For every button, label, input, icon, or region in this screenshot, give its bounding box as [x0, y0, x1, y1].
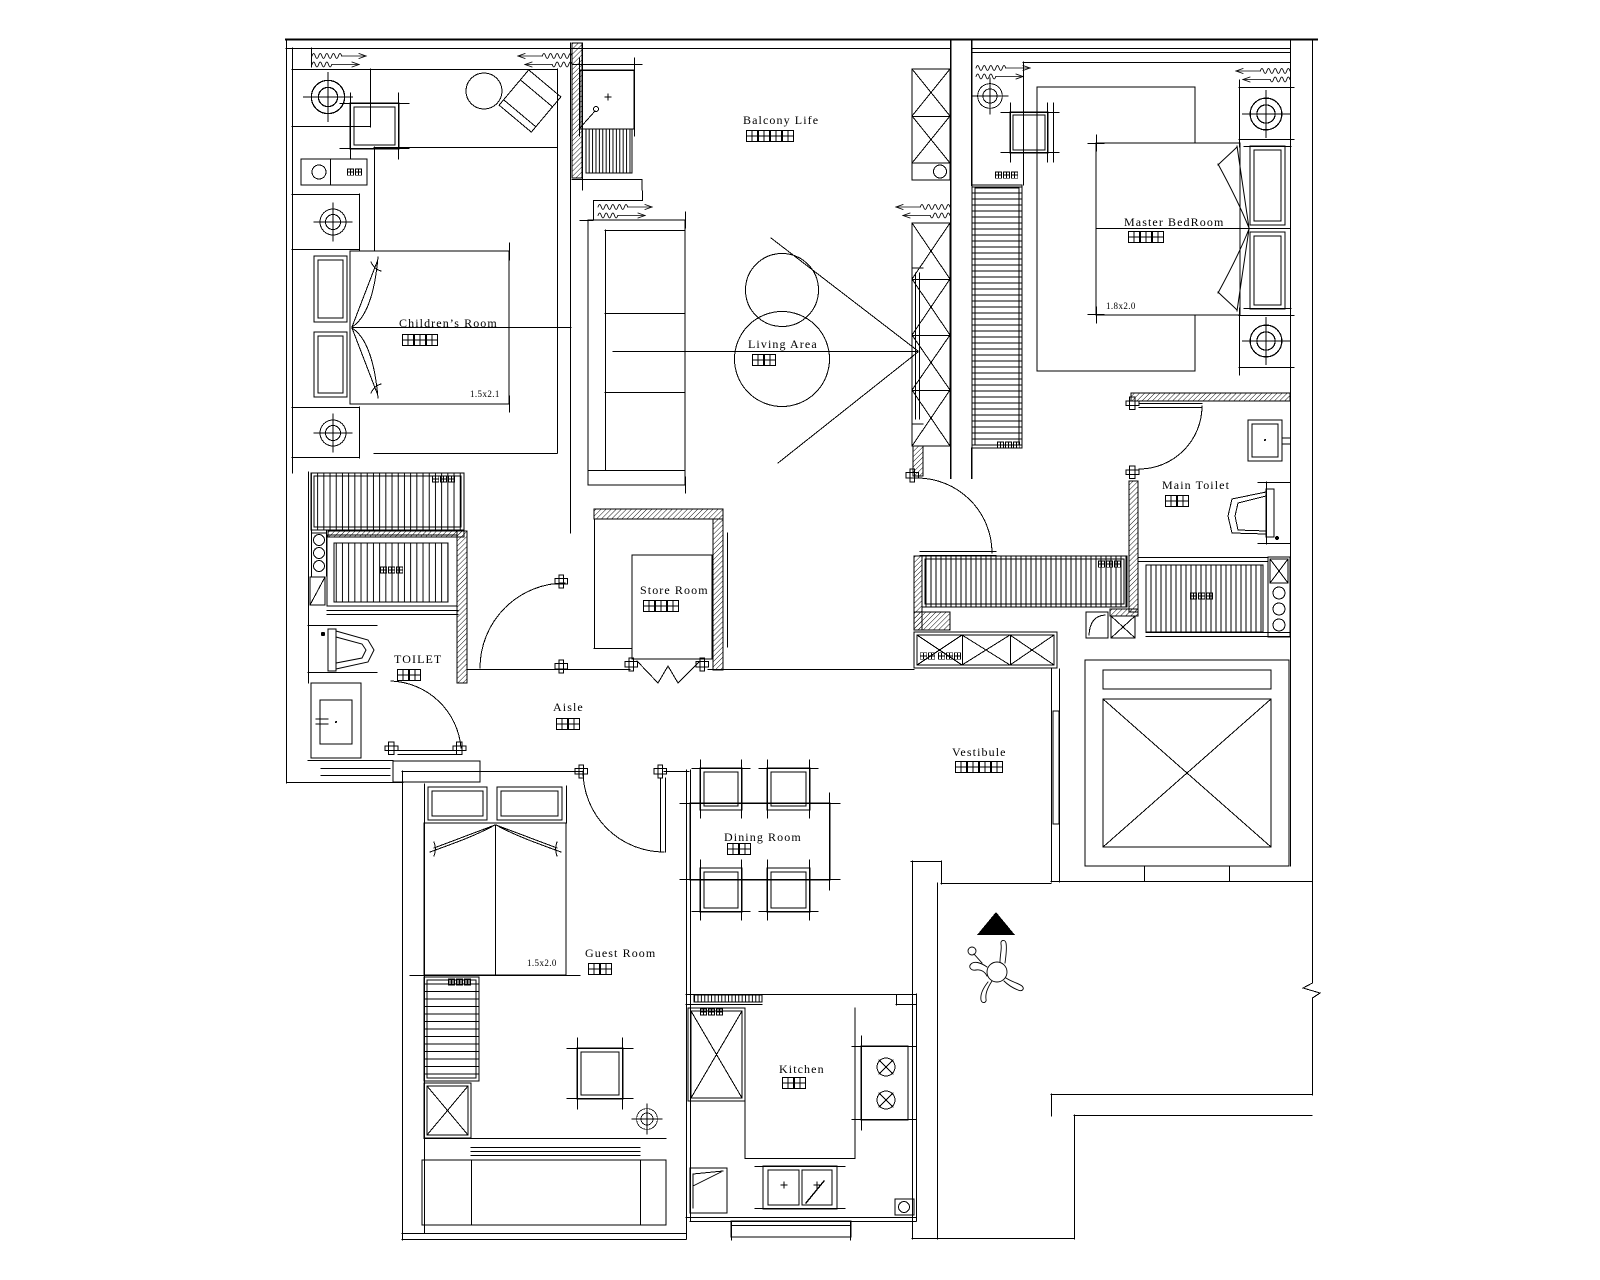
svg-text:Guest Room: Guest Room — [585, 946, 656, 960]
svg-text:1.8x2.0: 1.8x2.0 — [1106, 301, 1136, 311]
svg-text:Main Toilet: Main Toilet — [1162, 478, 1230, 492]
svg-text:Living Area: Living Area — [748, 337, 818, 351]
svg-text:Aisle: Aisle — [553, 700, 584, 714]
svg-text:Dining Room: Dining Room — [724, 830, 802, 844]
svg-text:Master BedRoom: Master BedRoom — [1124, 215, 1224, 229]
svg-text:Kitchen: Kitchen — [779, 1062, 825, 1076]
svg-text:Vestibule: Vestibule — [952, 745, 1007, 759]
svg-text:Store Room: Store Room — [640, 583, 709, 597]
svg-text:TOILET: TOILET — [394, 652, 442, 666]
svg-text:1.5x2.1: 1.5x2.1 — [470, 389, 500, 399]
svg-text:1.5x2.0: 1.5x2.0 — [527, 958, 557, 968]
svg-text:Balcony Life: Balcony Life — [743, 113, 819, 127]
